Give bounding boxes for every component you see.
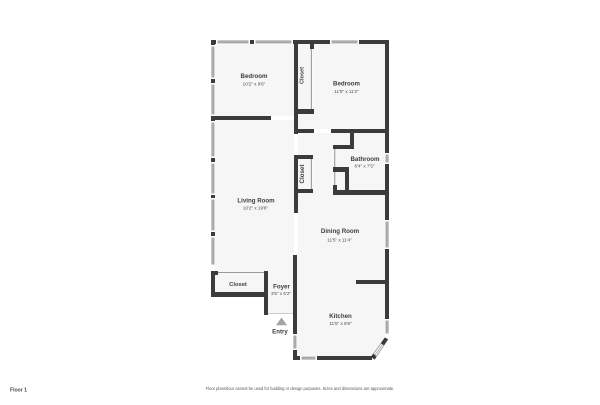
svg-text:3'5" x 5'2": 3'5" x 5'2" <box>271 291 291 296</box>
svg-text:Living Room: Living Room <box>237 198 275 205</box>
svg-text:Bedroom: Bedroom <box>333 81 360 88</box>
svg-text:11'5" x 9'6": 11'5" x 9'6" <box>329 321 352 326</box>
svg-text:Closet: Closet <box>229 282 247 288</box>
svg-text:Closet: Closet <box>299 165 306 184</box>
svg-text:11'5" x 11'2": 11'5" x 11'2" <box>334 89 359 94</box>
svg-text:10'2" x 9'6": 10'2" x 9'6" <box>243 81 266 86</box>
svg-text:Bathroom: Bathroom <box>351 156 381 163</box>
svg-text:Closet: Closet <box>300 67 306 84</box>
svg-text:Dining Room: Dining Room <box>321 228 360 235</box>
svg-text:11'5" x 11'4": 11'5" x 11'4" <box>327 237 352 242</box>
svg-text:6'4" x 7'5": 6'4" x 7'5" <box>354 163 374 168</box>
svg-text:Floor 1: Floor 1 <box>10 388 27 394</box>
svg-text:Bedroom: Bedroom <box>241 73 268 80</box>
svg-text:Floor plans/tour cannot be use: Floor plans/tour cannot be used for buil… <box>206 386 395 391</box>
svg-text:Entry: Entry <box>272 329 288 336</box>
svg-text:Kitchen: Kitchen <box>329 313 352 320</box>
svg-text:10'2" x 19'8": 10'2" x 19'8" <box>243 206 269 211</box>
svg-text:Foyer: Foyer <box>273 284 290 291</box>
